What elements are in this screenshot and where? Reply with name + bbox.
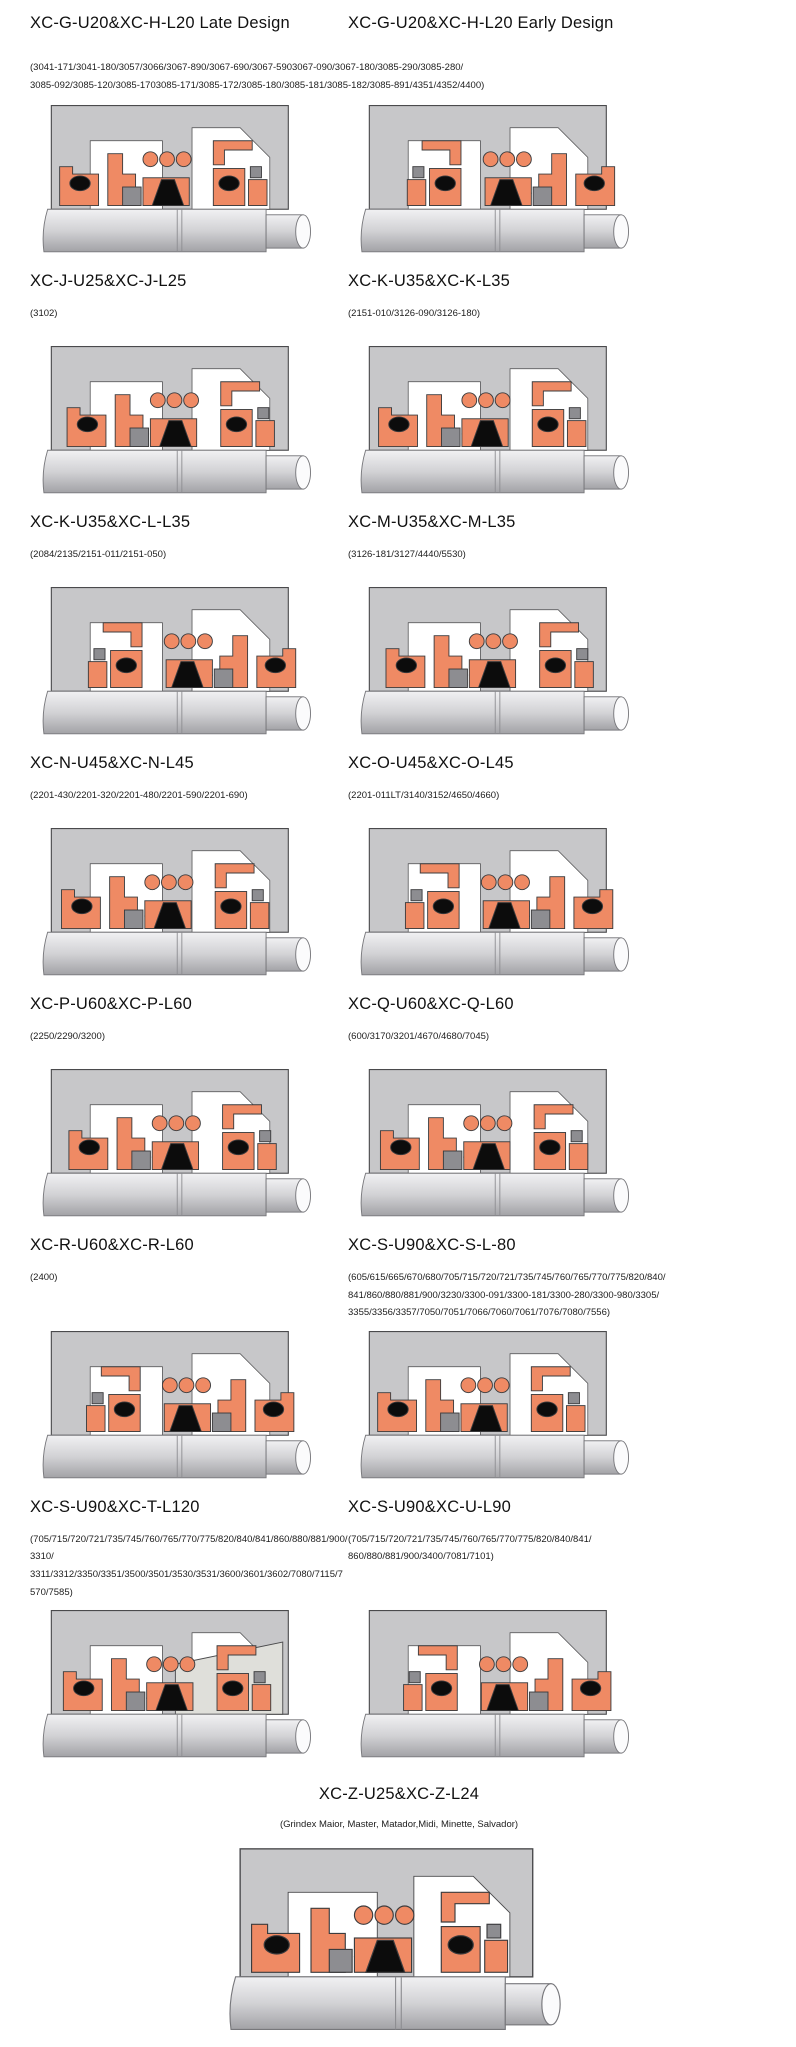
o-ring (264, 1935, 289, 1953)
shaft (361, 450, 584, 493)
seal-seat (87, 1405, 106, 1431)
o-ring (433, 899, 453, 914)
seal-cell: XC-M-U35&XC-M-L35 (3126-181/3127/4440/55… (348, 513, 768, 744)
spring-coil (462, 393, 477, 408)
seal-cell: XC-S-U90&XC-U-L90 (705/715/720/721/735/7… (348, 1498, 768, 1767)
seal-diagram (213, 1842, 585, 2042)
shaft (361, 1714, 584, 1757)
spring-coil (169, 1116, 184, 1131)
spring-coil (180, 1657, 195, 1672)
spring-coil (479, 393, 494, 408)
spring-coil (496, 1657, 511, 1672)
o-ring (226, 417, 246, 432)
shaft-end-cap (296, 938, 311, 971)
seal-row-4: XC-N-U45&XC-N-L45 (2201-430/2201-320/220… (30, 754, 768, 985)
seal-seat (258, 1144, 277, 1170)
spring-coil (163, 1657, 178, 1672)
model-names-footer: (Grindex Maior, Master, Matador,Midi, Mi… (30, 1816, 768, 1834)
o-ring (219, 176, 239, 191)
seal-cell: XC-O-U45&XC-O-L45 (2201-011LT/3140/3152/… (348, 754, 768, 985)
shaft (361, 932, 584, 975)
seal-seat (249, 180, 268, 206)
model-numbers: (705/715/720/721/735/745/760/765/770/775… (30, 1531, 348, 1601)
shaft-end-cap (614, 1179, 629, 1212)
shaft-end-cap (296, 456, 311, 489)
drive-pin (254, 1672, 265, 1683)
seal-cross-section (30, 1605, 330, 1767)
seal-title: XC-S-U90&XC-U-L90 (348, 1498, 768, 1517)
seal-diagram (30, 582, 330, 744)
seal-cross-section (30, 1064, 330, 1226)
row-diagrams (30, 100, 768, 262)
seal-face (132, 1151, 151, 1170)
drive-pin (260, 1131, 271, 1142)
model-numbers: (3102) (30, 305, 348, 337)
spring-coil (184, 393, 199, 408)
drive-pin (92, 1392, 103, 1403)
spring-coil (486, 634, 501, 649)
seal-row-3: XC-K-U35&XC-L-L35 (2084/2135/2151-011/21… (30, 513, 768, 744)
shaft-end-cap (614, 697, 629, 730)
drive-pin (569, 408, 580, 419)
o-ring (448, 1935, 473, 1953)
o-ring (431, 1681, 451, 1696)
seal-diagram (30, 1605, 330, 1767)
shaft (43, 1714, 266, 1757)
seal-diagram (30, 100, 330, 262)
seal-face (212, 1413, 231, 1432)
seal-face (214, 669, 233, 688)
spring-coil (160, 152, 175, 167)
seal-seat (575, 662, 594, 688)
seal-catalog-page: XC-G-U20&XC-H-L20 Late Design XC-G-U20&X… (0, 0, 796, 2042)
seal-cross-section (213, 1842, 585, 2042)
spring-coil (483, 152, 498, 167)
seal-cross-section (348, 1605, 648, 1767)
seal-title: XC-K-U35&XC-K-L35 (348, 272, 768, 291)
spring-coil (162, 1378, 177, 1393)
shaft-end-cap (614, 1441, 629, 1474)
seal-cell: XC-J-U25&XC-J-L25 (3102) (30, 272, 348, 503)
o-ring (221, 899, 241, 914)
seal-row-5: XC-P-U60&XC-P-L60 (2250/2290/3200) (30, 995, 768, 1226)
o-ring (223, 1681, 243, 1696)
model-numbers: (705/715/720/721/735/745/760/765/770/775… (348, 1531, 768, 1566)
spring-coil (145, 875, 160, 890)
shaft-end-cap (296, 697, 311, 730)
shaft (43, 691, 266, 734)
shaft-end-cap (296, 215, 311, 248)
model-numbers: (3126-181/3127/4440/5530) (348, 546, 768, 578)
shaft-end-cap (296, 1441, 311, 1474)
shaft (361, 691, 584, 734)
shaft (43, 932, 266, 975)
drive-pin (411, 890, 422, 901)
seal-cell: XC-K-U35&XC-K-L35 (2151-010/3126-090/312… (348, 272, 768, 503)
shaft-end-cap (296, 1720, 311, 1753)
model-numbers: (2400) (30, 1269, 348, 1301)
seal-cell: XC-Q-U60&XC-Q-L60 (600/3170/3201/4670/46… (348, 995, 768, 1226)
seal-title: XC-R-U60&XC-R-L60 (30, 1236, 348, 1255)
seal-diagram (30, 1326, 330, 1488)
drive-pin (571, 1131, 582, 1142)
spring-coil (178, 875, 193, 890)
seal-cross-section (348, 341, 648, 503)
drive-pin (258, 408, 269, 419)
seal-row-2: XC-J-U25&XC-J-L25 (3102) (30, 272, 768, 503)
drive-pin (94, 649, 105, 660)
o-ring (582, 899, 602, 914)
seal-diagram (30, 341, 330, 503)
seal-cross-section (348, 1326, 648, 1488)
seal-seat (404, 1685, 423, 1711)
spring-coil (517, 152, 532, 167)
seal-cell: XC-N-U45&XC-N-L45 (2201-430/2201-320/220… (30, 754, 348, 985)
seal-cell: XC-S-U90&XC-T-L120 (705/715/720/721/735/… (30, 1498, 348, 1767)
o-ring (540, 1140, 560, 1155)
seal-title: XC-S-U90&XC-S-L-80 (348, 1236, 768, 1255)
shaft-end-cap (614, 1720, 629, 1753)
seal-face (449, 669, 468, 688)
seal-face (441, 1413, 460, 1432)
o-ring (72, 899, 92, 914)
model-numbers: (605/615/665/670/680/705/715/720/721/735… (348, 1269, 768, 1322)
seal-face (442, 428, 461, 447)
seal-cross-section (348, 823, 648, 985)
seal-seat (567, 1405, 586, 1431)
seal-diagram (348, 823, 648, 985)
model-numbers: (2250/2290/3200) (30, 1028, 348, 1060)
o-ring (228, 1140, 248, 1155)
drive-pin (250, 167, 261, 178)
seal-face (443, 1151, 462, 1170)
spring-coil (179, 1378, 194, 1393)
seal-cell: XC-R-U60&XC-R-L60 (2400) (30, 1236, 348, 1488)
spring-coil (498, 875, 513, 890)
seal-cross-section (30, 582, 330, 744)
spring-coil (186, 1116, 201, 1131)
spring-coil (375, 1906, 393, 1924)
spring-coil (469, 634, 484, 649)
seal-row-footer: XC-Z-U25&XC-Z-L24 (Grindex Maior, Master… (30, 1785, 768, 2042)
o-ring (77, 417, 97, 432)
seal-diagram (348, 1605, 648, 1767)
seal-face (123, 187, 142, 206)
seal-row-6: XC-R-U60&XC-R-L60 (2400) (30, 1236, 768, 1488)
spring-coil (478, 1378, 493, 1393)
seal-face (126, 1692, 145, 1711)
o-ring (116, 658, 136, 673)
o-ring (263, 1402, 283, 1417)
shaft (43, 1435, 266, 1478)
spring-coil (479, 1657, 494, 1672)
seal-face (533, 187, 552, 206)
seal-cross-section (348, 582, 648, 744)
seal-cross-section (30, 823, 330, 985)
spring-coil (150, 393, 165, 408)
seal-title: XC-P-U60&XC-P-L60 (30, 995, 348, 1014)
o-ring (545, 658, 565, 673)
o-ring (391, 1140, 411, 1155)
model-numbers-shared: (3041-171/3041-180/3057/3066/3067-890/30… (30, 59, 575, 94)
spring-coil (464, 1116, 479, 1131)
spring-coil (500, 152, 515, 167)
seal-seat (256, 421, 275, 447)
shaft (43, 209, 266, 252)
o-ring (114, 1402, 134, 1417)
seal-title-late-design: XC-G-U20&XC-H-L20 Late Design (30, 14, 348, 33)
o-ring (74, 1681, 94, 1696)
spring-coil (143, 152, 158, 167)
spring-coil (513, 1657, 528, 1672)
seal-cross-section (30, 341, 330, 503)
shaft-end-cap (614, 215, 629, 248)
seal-seat (250, 903, 269, 929)
o-ring (537, 1402, 557, 1417)
shaft (43, 1173, 266, 1216)
seal-cell: XC-K-U35&XC-L-L35 (2084/2135/2151-011/21… (30, 513, 348, 744)
seal-title-early-design: XC-G-U20&XC-H-L20 Early Design (348, 14, 768, 33)
spring-coil (176, 152, 191, 167)
shaft (361, 209, 584, 252)
spring-coil (167, 393, 182, 408)
seal-title: XC-Q-U60&XC-Q-L60 (348, 995, 768, 1014)
seal-diagram (348, 341, 648, 503)
seal-diagram (30, 823, 330, 985)
seal-cross-section (30, 1326, 330, 1488)
seal-diagram (348, 1064, 648, 1226)
seal-title: XC-K-U35&XC-L-L35 (30, 513, 348, 532)
drive-pin (409, 1672, 420, 1683)
model-numbers: (2201-430/2201-320/2201-480/2201-590/220… (30, 787, 348, 819)
spring-coil (354, 1906, 372, 1924)
seal-diagram (348, 100, 648, 262)
o-ring (79, 1140, 99, 1155)
o-ring (584, 176, 604, 191)
o-ring (396, 658, 416, 673)
seal-cell: XC-S-U90&XC-S-L-80 (605/615/665/670/680/… (348, 1236, 768, 1488)
o-ring (538, 417, 558, 432)
seal-row-7: XC-S-U90&XC-T-L120 (705/715/720/721/735/… (30, 1498, 768, 1767)
seal-seat (405, 903, 424, 929)
shaft (361, 1173, 584, 1216)
seal-diagram (30, 1064, 330, 1226)
model-numbers: (2151-010/3126-090/3126-180) (348, 305, 768, 337)
drive-pin (413, 167, 424, 178)
seal-title: XC-O-U45&XC-O-L45 (348, 754, 768, 773)
o-ring (580, 1681, 600, 1696)
seal-seat (407, 180, 426, 206)
o-ring (265, 658, 285, 673)
row-titles: XC-G-U20&XC-H-L20 Late Design XC-G-U20&X… (30, 14, 768, 47)
model-numbers: (2084/2135/2151-011/2151-050) (30, 546, 348, 578)
spring-coil (480, 1116, 495, 1131)
seal-cross-section (30, 100, 330, 262)
seal-title-footer: XC-Z-U25&XC-Z-L24 (30, 1785, 768, 1804)
seal-title: XC-J-U25&XC-J-L25 (30, 272, 348, 291)
spring-coil (497, 1116, 512, 1131)
seal-cross-section (348, 100, 648, 262)
seal-title: XC-S-U90&XC-T-L120 (30, 1498, 348, 1517)
seal-cross-section (348, 1064, 648, 1226)
shaft-end-cap (296, 1179, 311, 1212)
spring-coil (181, 634, 196, 649)
drive-pin (577, 649, 588, 660)
shaft-end-cap (614, 938, 629, 971)
seal-seat (567, 421, 586, 447)
drive-pin (568, 1392, 579, 1403)
shaft-end-cap (614, 456, 629, 489)
spring-coil (461, 1378, 476, 1393)
o-ring (388, 1402, 408, 1417)
seal-face (529, 1692, 548, 1711)
spring-coil (152, 1116, 167, 1131)
seal-seat (485, 1940, 508, 1972)
shaft (361, 1435, 584, 1478)
seal-face (329, 1949, 352, 1972)
seal-row-1: XC-G-U20&XC-H-L20 Late Design XC-G-U20&X… (30, 14, 768, 262)
o-ring (435, 176, 455, 191)
spring-coil (198, 634, 213, 649)
spring-coil (164, 634, 179, 649)
seal-cell: XC-P-U60&XC-P-L60 (2250/2290/3200) (30, 995, 348, 1226)
spring-coil (494, 1378, 509, 1393)
o-ring (70, 176, 90, 191)
seal-title: XC-N-U45&XC-N-L45 (30, 754, 348, 773)
spring-coil (161, 875, 176, 890)
o-ring (389, 417, 409, 432)
spring-coil (396, 1906, 414, 1924)
seal-seat (88, 662, 107, 688)
seal-seat (252, 1685, 271, 1711)
spring-coil (515, 875, 530, 890)
spring-coil (147, 1657, 162, 1672)
spring-coil (196, 1378, 211, 1393)
seal-face (130, 428, 149, 447)
drive-pin (487, 1924, 501, 1938)
model-numbers: (2201-011LT/3140/3152/4650/4660) (348, 787, 768, 819)
drive-pin (252, 890, 263, 901)
seal-diagram (348, 582, 648, 744)
seal-diagram (348, 1326, 648, 1488)
spring-coil (481, 875, 496, 890)
shaft (230, 1976, 505, 2029)
model-numbers: (600/3170/3201/4670/4680/7045) (348, 1028, 768, 1060)
shaft (43, 450, 266, 493)
seal-title: XC-M-U35&XC-M-L35 (348, 513, 768, 532)
seal-face (124, 910, 143, 929)
seal-seat (569, 1144, 588, 1170)
spring-coil (503, 634, 518, 649)
seal-face (531, 910, 550, 929)
spring-coil (495, 393, 510, 408)
